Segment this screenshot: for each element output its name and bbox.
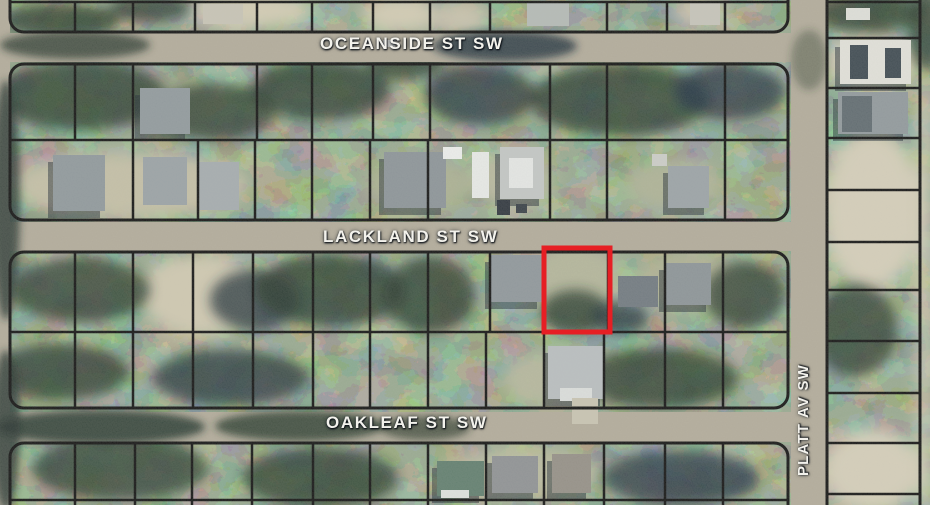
street-label-oceanside: OCEANSIDE ST SW: [320, 35, 504, 52]
street-label-oakleaf: OAKLEAF ST SW: [326, 414, 488, 431]
street-label-lackland: LACKLAND ST SW: [323, 228, 498, 245]
aerial-parcel-map: OCEANSIDE ST SW LACKLAND ST SW OAKLEAF S…: [0, 0, 930, 505]
street-label-platt: PLATT AV SW: [796, 345, 812, 495]
